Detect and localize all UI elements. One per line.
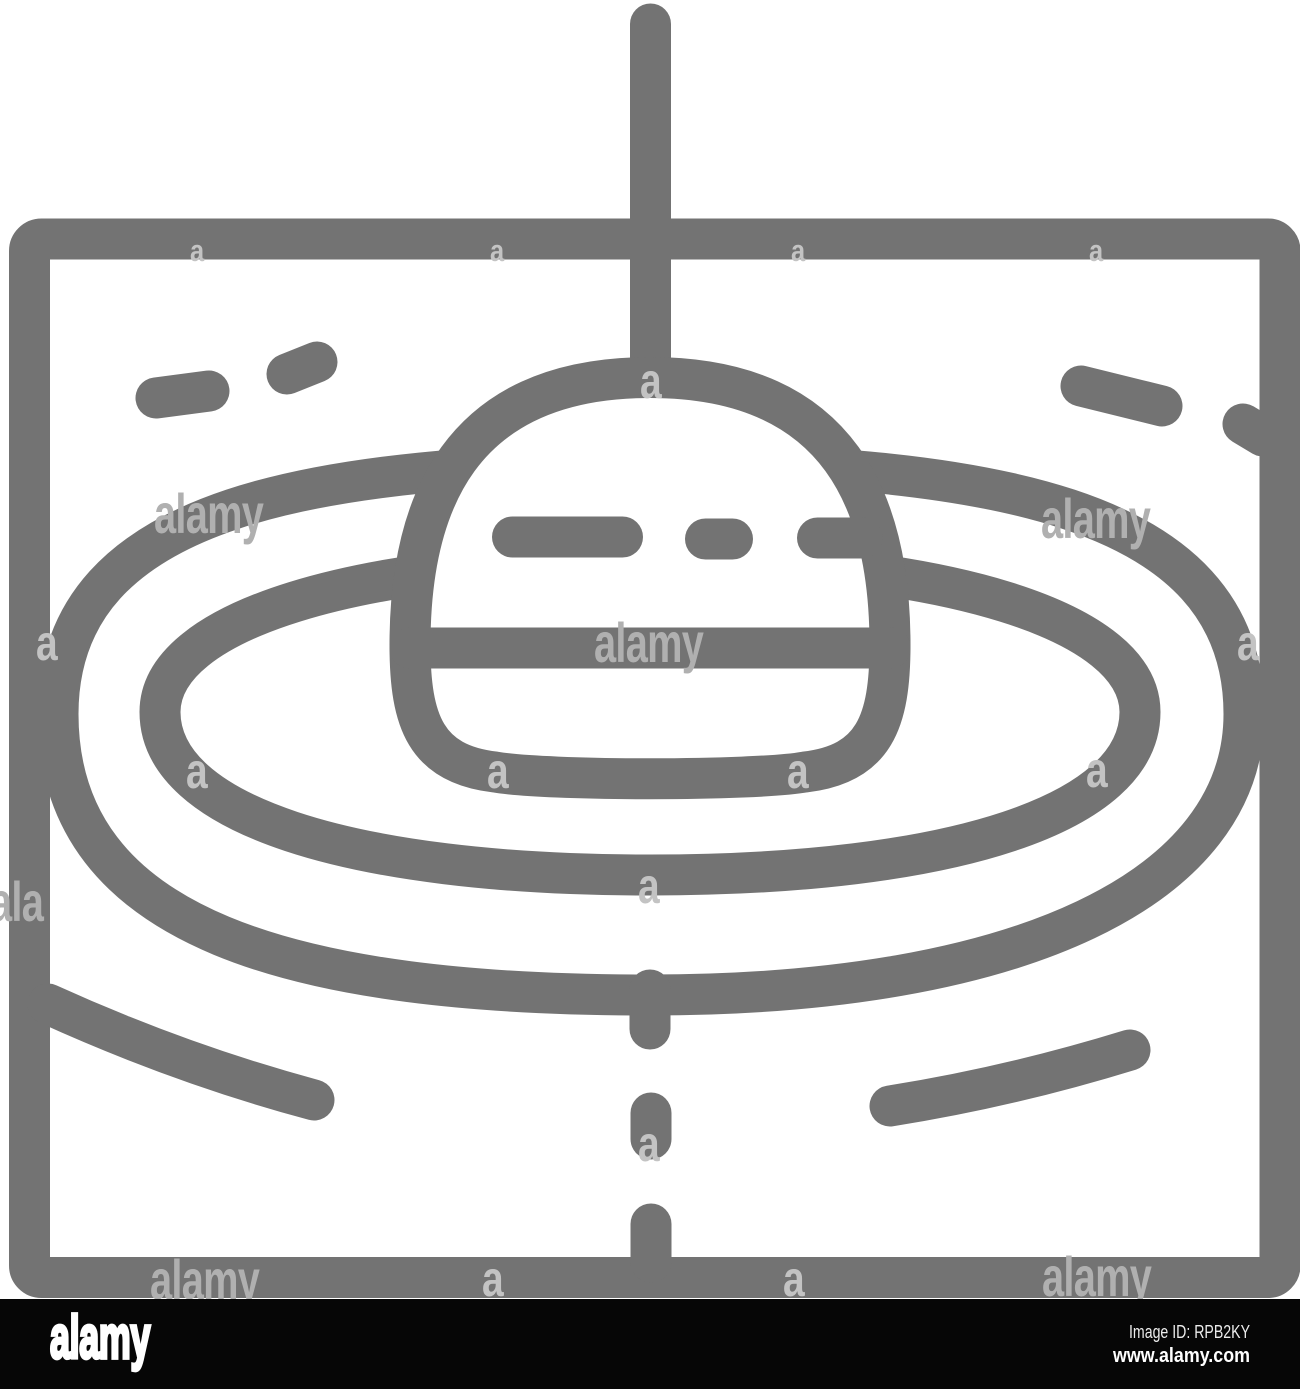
svg-text:a: a xyxy=(487,742,510,799)
svg-text:a: a xyxy=(36,614,59,671)
svg-text:a: a xyxy=(490,234,504,269)
svg-text:a: a xyxy=(638,1115,661,1172)
svg-text:Image ID: RPB2KY: Image ID: RPB2KY xyxy=(1129,1321,1250,1342)
svg-text:a: a xyxy=(1086,741,1109,798)
svg-text:a: a xyxy=(190,234,204,269)
svg-text:a: a xyxy=(640,352,663,409)
svg-text:ala: ala xyxy=(0,871,45,933)
svg-text:alamy: alamy xyxy=(594,612,704,674)
svg-text:alamy: alamy xyxy=(1041,488,1151,550)
svg-text:a: a xyxy=(791,234,805,269)
svg-text:a: a xyxy=(638,857,661,914)
svg-text:alamy: alamy xyxy=(50,1303,151,1371)
svg-text:a: a xyxy=(787,742,810,799)
svg-text:a: a xyxy=(1089,234,1103,269)
svg-text:a: a xyxy=(1237,614,1260,671)
svg-text:alamy: alamy xyxy=(154,483,264,545)
svg-text:a: a xyxy=(482,1250,505,1307)
svg-text:a: a xyxy=(783,1250,806,1307)
svg-text:a: a xyxy=(186,742,209,799)
svg-text:www.alamy.com: www.alamy.com xyxy=(1112,1345,1250,1367)
